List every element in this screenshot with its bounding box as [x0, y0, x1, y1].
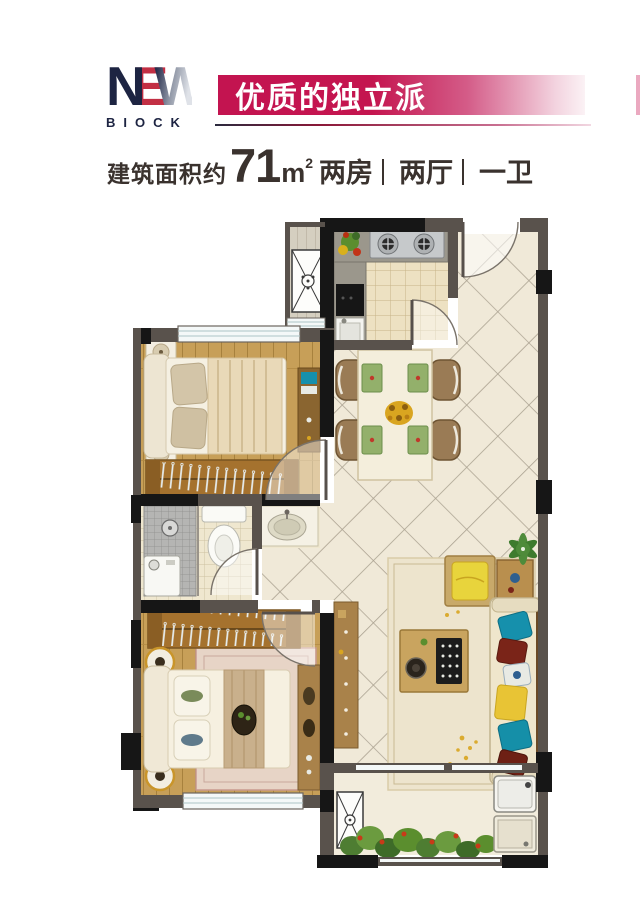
headline-title: 优质的独立派: [235, 73, 427, 117]
headline-banner: 优质的独立派: [218, 75, 585, 115]
master-bed: [144, 666, 290, 772]
kitchen-cooktop-cabinet: [336, 284, 364, 316]
side-table: [497, 560, 533, 602]
area-unit: m: [281, 158, 305, 189]
kitchen-stove: [370, 230, 444, 258]
brand-logo-word: N E W: [106, 62, 218, 110]
layout-bathrooms: 一卫: [479, 151, 533, 190]
logo-letter-n: N: [106, 62, 132, 110]
washing-machine-balcony: [494, 776, 536, 812]
laundry-basin: [494, 816, 536, 852]
area-value: 71: [230, 138, 280, 193]
coffee-table: [400, 630, 468, 692]
layout-separator: [462, 159, 464, 185]
area-prefix: 建筑面积约: [107, 155, 227, 189]
bedroom2-cabinet: [298, 368, 320, 452]
corridor-floor: [262, 548, 334, 600]
dining-centerpiece: [385, 401, 413, 425]
area-unit-superscript: 2: [305, 155, 313, 171]
brand-logo-subtitle: BIOCK: [106, 115, 218, 130]
kitchen-door: [412, 300, 457, 345]
brand-logo: N E W BIOCK: [106, 62, 218, 130]
armchair: [445, 556, 495, 606]
dining-chair: [430, 420, 460, 460]
washbasin-niche: [256, 506, 318, 546]
unit-spec-line: 建筑面积约 71 m 2 两房 两厅 一卫: [0, 138, 640, 193]
corridor-floor-edge: [320, 503, 334, 548]
header-divider-line: [215, 124, 591, 126]
dining-chair: [430, 360, 460, 400]
master-tv-cabinet: [298, 665, 320, 790]
living-tv-cabinet: [334, 602, 358, 748]
floorplan: [115, 200, 575, 890]
layout-separator: [382, 159, 384, 185]
logo-letter-w: W: [154, 62, 192, 110]
page-edge-accent: [636, 75, 640, 115]
shower-head: [162, 520, 178, 536]
layout-bedrooms: 两房: [319, 151, 373, 190]
master-window: [183, 793, 303, 809]
bedroom2-window: [178, 326, 300, 342]
logo-letter-e: E: [132, 62, 155, 110]
washing-machine-bathroom: [144, 556, 180, 596]
ac-unit-platform: [292, 250, 324, 312]
sofa: [490, 598, 542, 784]
layout-halls: 两厅: [399, 151, 453, 190]
bedroom2-bed: [144, 354, 286, 458]
